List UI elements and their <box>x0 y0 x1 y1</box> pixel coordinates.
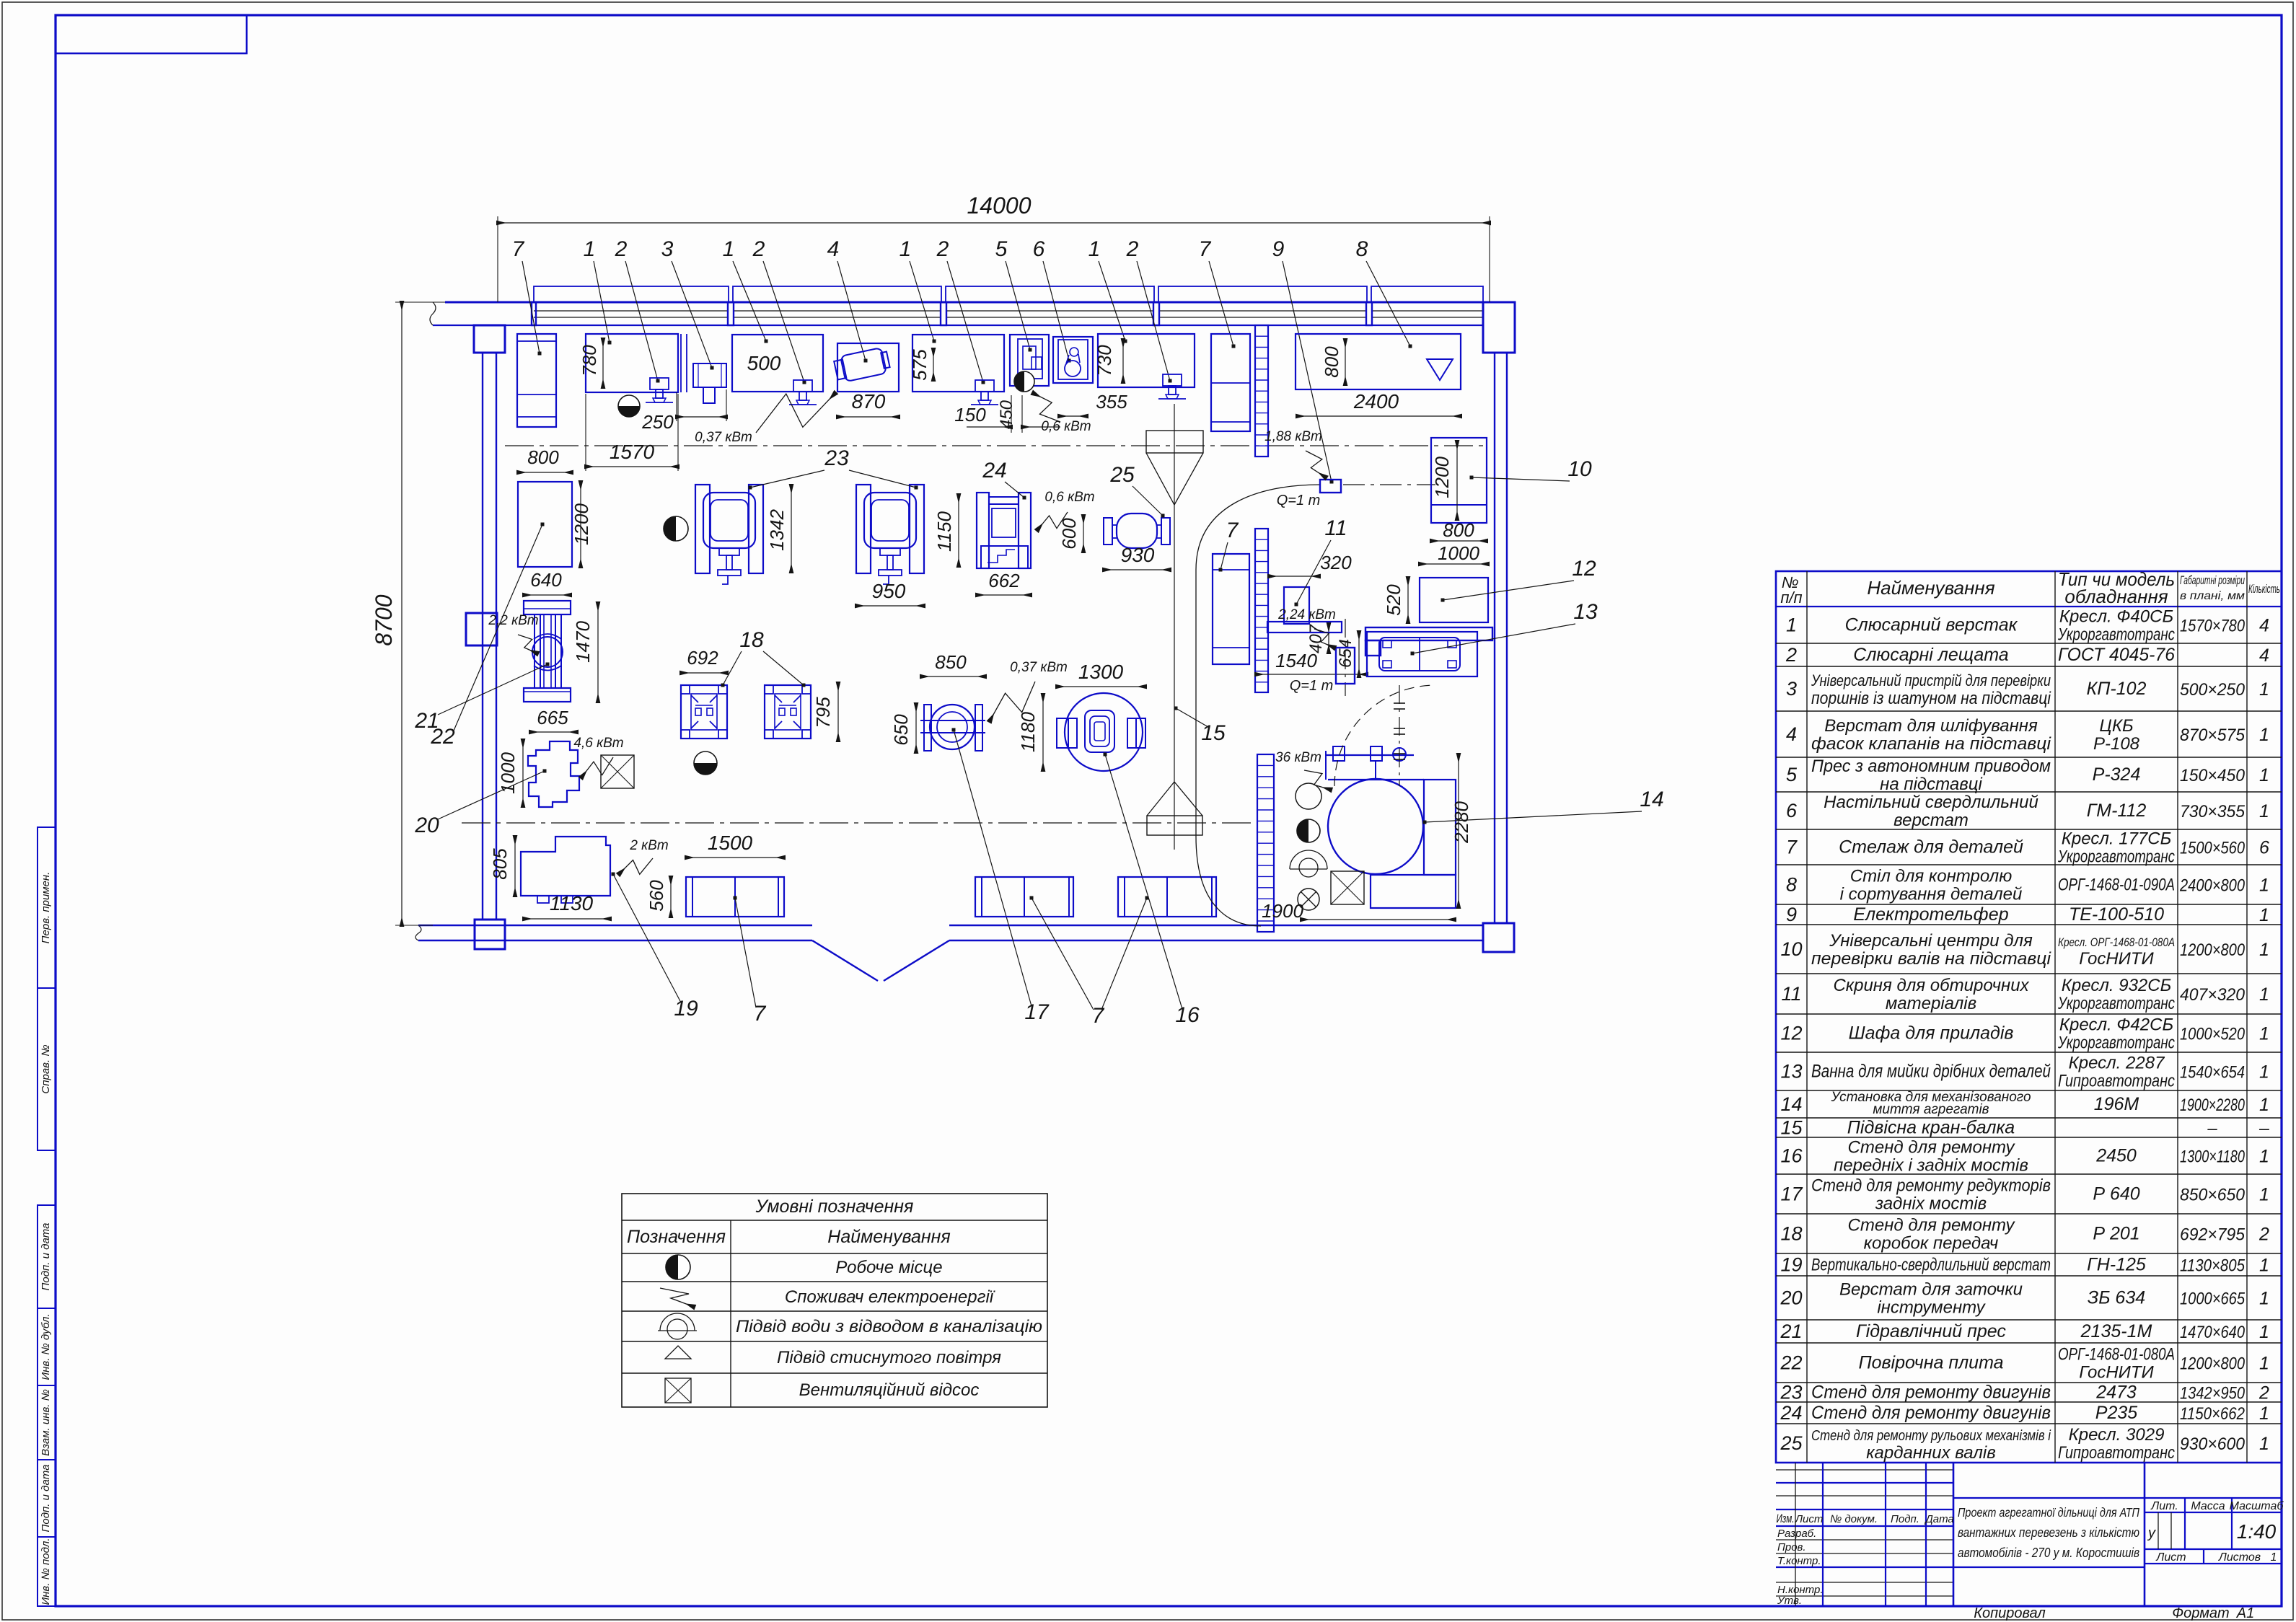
svg-text:№ докум.: № докум. <box>1830 1513 1878 1525</box>
svg-text:1470×640: 1470×640 <box>2180 1323 2246 1342</box>
svg-text:150×450: 150×450 <box>2180 766 2246 785</box>
svg-text:Р 201: Р 201 <box>2093 1224 2139 1244</box>
svg-text:930×600: 930×600 <box>2180 1434 2246 1454</box>
svg-text:ГосНИТИ: ГосНИТИ <box>2079 949 2154 969</box>
svg-text:Утв.: Утв. <box>1777 1595 1802 1607</box>
svg-text:1: 1 <box>2259 1095 2269 1115</box>
svg-text:Підвід води з відводом в канал: Підвід води з відводом в каналізацію <box>736 1317 1042 1336</box>
svg-text:17: 17 <box>1780 1184 1803 1205</box>
svg-text:Дата: Дата <box>1924 1513 1954 1525</box>
svg-text:930: 930 <box>1121 544 1155 566</box>
svg-text:Пров.: Пров. <box>1777 1541 1806 1553</box>
svg-text:196М: 196М <box>2094 1094 2139 1114</box>
svg-text:7: 7 <box>512 237 525 261</box>
svg-text:Стелаж для деталей: Стелаж для деталей <box>1839 837 2023 858</box>
svg-text:ОРГ-1468-01-080А: ОРГ-1468-01-080А <box>2058 1345 2175 1365</box>
svg-text:Инв. № дубл.: Инв. № дубл. <box>40 1313 52 1380</box>
svg-text:560: 560 <box>646 880 667 912</box>
svg-text:Листов: Листов <box>2218 1551 2261 1564</box>
svg-text:14000: 14000 <box>967 193 1032 219</box>
svg-text:25: 25 <box>1780 1432 1803 1454</box>
svg-text:Т.контр.: Т.контр. <box>1777 1555 1821 1567</box>
svg-text:800: 800 <box>1443 519 1474 541</box>
svg-text:Копировал: Копировал <box>1974 1605 2045 1621</box>
svg-text:Підвісна кран-балка: Підвісна кран-балка <box>1847 1118 2015 1138</box>
svg-text:2: 2 <box>752 237 765 261</box>
svg-text:1: 1 <box>2259 765 2269 785</box>
svg-text:7: 7 <box>1092 1004 1105 1028</box>
svg-text:Настільний свердлильний: Настільний свердлильний <box>1824 793 2038 812</box>
svg-text:Кресл. Ф40СБ: Кресл. Ф40СБ <box>2059 607 2173 627</box>
svg-text:коробок передач: коробок передач <box>1864 1234 1999 1253</box>
svg-text:1200: 1200 <box>1431 457 1453 498</box>
svg-text:4: 4 <box>2259 645 2269 666</box>
svg-text:1150×662: 1150×662 <box>2180 1404 2245 1424</box>
svg-text:А1: А1 <box>2236 1605 2254 1621</box>
svg-text:450: 450 <box>997 400 1016 429</box>
svg-text:Масштаб: Масштаб <box>2230 1500 2284 1512</box>
svg-text:0,37 кВт: 0,37 кВт <box>695 430 752 445</box>
svg-text:Стіл для контролю: Стіл для контролю <box>1850 867 2013 886</box>
svg-text:250: 250 <box>641 411 674 433</box>
svg-text:на підставці: на підставці <box>1880 775 1982 794</box>
svg-text:–: – <box>2207 1119 2217 1139</box>
svg-text:1570×780: 1570×780 <box>2180 617 2246 636</box>
svg-text:12: 12 <box>1780 1023 1802 1044</box>
svg-text:795: 795 <box>812 697 834 728</box>
svg-text:2 кВт: 2 кВт <box>629 838 668 853</box>
svg-text:22: 22 <box>1780 1352 1802 1374</box>
svg-text:1: 1 <box>2259 679 2269 700</box>
svg-text:КП-102: КП-102 <box>2087 679 2147 699</box>
svg-text:12: 12 <box>1572 557 1596 581</box>
svg-text:Гипроавтотранс: Гипроавтотранс <box>2058 1443 2175 1463</box>
svg-text:9: 9 <box>1786 904 1797 925</box>
svg-text:1: 1 <box>1786 614 1797 636</box>
svg-text:0,6 кВт: 0,6 кВт <box>1041 419 1091 434</box>
svg-text:21: 21 <box>1780 1321 1802 1342</box>
svg-text:10: 10 <box>1567 457 1592 481</box>
svg-text:Укроргавтотранс: Укроргавтотранс <box>2057 994 2175 1013</box>
svg-text:1200: 1200 <box>571 503 592 545</box>
svg-text:Укроргавтотранс: Укроргавтотранс <box>2057 1033 2175 1053</box>
svg-text:11: 11 <box>1324 516 1347 540</box>
svg-text:миття агрегатів: миття агрегатів <box>1873 1102 1989 1117</box>
svg-text:850×650: 850×650 <box>2180 1186 2246 1205</box>
svg-text:6: 6 <box>1033 237 1045 261</box>
svg-text:Укроргавтотранс: Укроргавтотранс <box>2057 625 2175 645</box>
svg-text:14: 14 <box>1780 1093 1802 1115</box>
svg-text:2: 2 <box>1785 644 1797 666</box>
svg-text:6: 6 <box>2259 838 2269 858</box>
svg-text:1000×665: 1000×665 <box>2180 1290 2246 1309</box>
svg-text:6: 6 <box>1786 800 1798 821</box>
svg-text:5: 5 <box>995 237 1008 261</box>
svg-text:25: 25 <box>1109 463 1135 487</box>
svg-text:1900: 1900 <box>1262 900 1303 922</box>
svg-text:36 кВт: 36 кВт <box>1275 750 1321 765</box>
svg-text:Масса: Масса <box>2191 1500 2225 1512</box>
svg-text:Укроргавтотранс: Укроргавтотранс <box>2057 847 2175 867</box>
svg-text:0,37 кВт: 0,37 кВт <box>1010 660 1068 675</box>
svg-text:2: 2 <box>936 237 949 261</box>
svg-text:–: – <box>2258 1119 2270 1139</box>
svg-text:Шафа для приладів: Шафа для приладів <box>1849 1023 2014 1044</box>
svg-text:2,2 кВт: 2,2 кВт <box>488 613 538 628</box>
svg-text:730: 730 <box>1094 345 1115 376</box>
svg-text:150: 150 <box>954 404 986 426</box>
svg-text:1: 1 <box>900 237 912 261</box>
svg-text:10: 10 <box>1780 938 1802 960</box>
svg-text:500×250: 500×250 <box>2180 680 2246 700</box>
svg-text:Взам. инв. №: Взам. инв. № <box>40 1389 52 1456</box>
svg-text:4: 4 <box>2259 616 2269 636</box>
svg-text:1: 1 <box>2259 725 2269 745</box>
svg-text:870×575: 870×575 <box>2180 726 2246 745</box>
svg-text:Подп. и дата: Подп. и дата <box>40 1223 52 1291</box>
svg-text:8: 8 <box>1356 237 1368 261</box>
svg-text:Гипроавтотранс: Гипроавтотранс <box>2058 1072 2175 1091</box>
svg-text:Кількість: Кількість <box>2248 582 2280 596</box>
svg-text:1: 1 <box>723 237 735 261</box>
svg-text:1: 1 <box>2259 801 2269 821</box>
svg-text:13: 13 <box>1780 1061 1802 1083</box>
svg-text:Верстат для шліфування: Верстат для шліфування <box>1824 716 2038 736</box>
svg-text:Робоче місце: Робоче місце <box>835 1258 942 1277</box>
svg-text:у: у <box>2147 1525 2156 1541</box>
svg-text:Стенд для ремонту: Стенд для ремонту <box>1848 1216 2016 1235</box>
svg-text:2135-1М: 2135-1М <box>2080 1321 2152 1341</box>
svg-text:9: 9 <box>1272 237 1285 261</box>
svg-text:0,6 кВт: 0,6 кВт <box>1044 490 1094 505</box>
svg-text:1342: 1342 <box>766 509 788 551</box>
svg-text:1: 1 <box>2259 940 2269 960</box>
svg-text:1: 1 <box>2259 1185 2269 1205</box>
svg-text:1: 1 <box>2259 1434 2269 1454</box>
svg-text:24: 24 <box>1780 1402 1802 1424</box>
svg-text:2,24 кВт: 2,24 кВт <box>1277 607 1336 622</box>
svg-text:16: 16 <box>1175 1003 1200 1027</box>
svg-text:1300: 1300 <box>1078 661 1124 683</box>
svg-text:1: 1 <box>2259 1289 2269 1309</box>
svg-text:4: 4 <box>1786 723 1797 745</box>
svg-text:Р-108: Р-108 <box>2093 734 2140 754</box>
svg-text:17: 17 <box>1024 1000 1050 1024</box>
svg-text:692: 692 <box>687 647 718 669</box>
svg-text:ГосНИТИ: ГосНИТИ <box>2079 1363 2154 1383</box>
svg-text:карданних валів: карданних валів <box>1866 1443 1996 1463</box>
svg-text:5: 5 <box>1786 764 1798 785</box>
svg-text:Стенд для ремонту редукторів: Стенд для ремонту редукторів <box>1811 1176 2051 1196</box>
svg-text:Р-324: Р-324 <box>2093 764 2141 785</box>
svg-text:15: 15 <box>1780 1117 1803 1139</box>
svg-text:Вентиляційний відсос: Вентиляційний відсос <box>799 1380 980 1400</box>
svg-text:18: 18 <box>739 628 764 652</box>
svg-text:Стенд для ремонту двигунів: Стенд для ремонту двигунів <box>1811 1403 2051 1423</box>
svg-text:Прес з автономним приводом: Прес з автономним приводом <box>1811 757 2051 776</box>
svg-text:1130×805: 1130×805 <box>2180 1256 2246 1276</box>
svg-text:1: 1 <box>2259 984 2269 1005</box>
svg-text:1300×1180: 1300×1180 <box>2180 1148 2245 1167</box>
svg-text:1: 1 <box>2259 1322 2269 1342</box>
svg-text:Універсальні центри для: Універсальні центри для <box>1829 931 2033 951</box>
svg-text:Кресл. Ф42СБ: Кресл. Ф42СБ <box>2059 1015 2173 1035</box>
svg-text:1: 1 <box>584 237 596 261</box>
svg-text:1: 1 <box>2259 1024 2269 1044</box>
svg-text:Гідравлічний прес: Гідравлічний прес <box>1856 1321 2006 1341</box>
svg-text:8700: 8700 <box>371 594 397 645</box>
svg-text:інструменту: інструменту <box>1877 1298 1986 1318</box>
svg-text:2400×800: 2400×800 <box>2179 876 2245 896</box>
svg-text:1150: 1150 <box>933 511 955 552</box>
svg-text:Слюсарний верстак: Слюсарний верстак <box>1845 615 2018 635</box>
svg-text:2: 2 <box>1126 237 1139 261</box>
svg-text:1570: 1570 <box>610 441 655 463</box>
svg-text:1900×2280: 1900×2280 <box>2180 1096 2245 1115</box>
svg-text:2473: 2473 <box>2095 1383 2137 1403</box>
svg-text:355: 355 <box>1096 391 1127 413</box>
svg-text:692×795: 692×795 <box>2180 1225 2246 1245</box>
svg-text:20: 20 <box>414 814 439 837</box>
svg-text:Кресл. ОРГ-1468-01-080А: Кресл. ОРГ-1468-01-080А <box>2058 935 2175 949</box>
svg-text:Ванна для мийки дрібних детале: Ванна для мийки дрібних деталей <box>1811 1062 2051 1082</box>
svg-text:Лист: Лист <box>1795 1513 1824 1525</box>
svg-text:Инв. № подл.: Инв. № подл. <box>40 1538 52 1605</box>
svg-text:2450: 2450 <box>2095 1146 2137 1166</box>
svg-text:4,6 кВт: 4,6 кВт <box>573 736 623 751</box>
svg-text:Формат: Формат <box>2172 1605 2229 1621</box>
svg-text:Р 640: Р 640 <box>2093 1184 2139 1204</box>
svg-text:730×355: 730×355 <box>2180 802 2246 821</box>
svg-text:14: 14 <box>1640 788 1663 811</box>
svg-text:Стенд для ремонту рульових мех: Стенд для ремонту рульових механізмів і <box>1811 1428 2051 1444</box>
svg-text:1000×520: 1000×520 <box>2180 1025 2246 1044</box>
svg-text:поршнів із шатуном на підставц: поршнів із шатуном на підставці <box>1811 689 2051 708</box>
svg-text:575: 575 <box>909 349 931 381</box>
svg-text:1342×950: 1342×950 <box>2180 1384 2246 1403</box>
svg-text:20: 20 <box>1780 1287 1802 1309</box>
svg-text:Q=1 m: Q=1 m <box>1277 493 1321 508</box>
svg-text:Габаритні розміри: Габаритні розміри <box>2180 573 2245 587</box>
svg-text:23: 23 <box>1780 1382 1802 1403</box>
svg-text:16: 16 <box>1780 1145 1803 1167</box>
svg-text:1: 1 <box>2259 1403 2269 1424</box>
svg-text:19: 19 <box>674 997 698 1021</box>
svg-text:1: 1 <box>2259 1062 2269 1083</box>
svg-text:Подп.: Подп. <box>1891 1513 1919 1525</box>
svg-text:3: 3 <box>661 237 674 261</box>
svg-text:500: 500 <box>747 352 781 374</box>
svg-text:Лист: Лист <box>2155 1551 2186 1564</box>
svg-text:Позначення: Позначення <box>627 1227 726 1247</box>
svg-text:2280: 2280 <box>1451 801 1472 844</box>
svg-text:Скриня для обтирочних: Скриня для обтирочних <box>1833 976 2029 995</box>
svg-text:Підвід стиснутого повітря: Підвід стиснутого повітря <box>777 1348 1001 1367</box>
svg-text:2: 2 <box>615 237 628 261</box>
svg-text:Лит.: Лит. <box>2150 1500 2178 1512</box>
svg-text:Q=1 m: Q=1 m <box>1290 678 1334 694</box>
svg-text:407: 407 <box>1306 623 1326 653</box>
svg-text:1200×800: 1200×800 <box>2180 1354 2246 1374</box>
svg-text:ГОСТ 4045-76: ГОСТ 4045-76 <box>2058 645 2175 665</box>
svg-text:7: 7 <box>1199 237 1212 261</box>
svg-text:1130: 1130 <box>550 892 594 914</box>
svg-text:320: 320 <box>1320 552 1352 573</box>
svg-text:ЗБ 634: ЗБ 634 <box>2088 1288 2145 1308</box>
svg-text:перевірки валів на підставці: перевірки валів на підставці <box>1811 949 2051 969</box>
svg-text:Кресл. 177СБ: Кресл. 177СБ <box>2062 829 2171 849</box>
svg-text:ГМ-112: ГМ-112 <box>2087 801 2147 821</box>
svg-text:Кресл. 2287: Кресл. 2287 <box>2069 1054 2165 1073</box>
svg-text:Найменування: Найменування <box>1867 577 1994 599</box>
svg-text:Вертикально-свердлильний верст: Вертикально-свердлильний верстат <box>1811 1256 2051 1275</box>
svg-text:і сортування деталей: і сортування деталей <box>1840 885 2023 904</box>
svg-text:Перв. примен.: Перв. примен. <box>40 872 52 944</box>
svg-text:Р235: Р235 <box>2095 1403 2137 1423</box>
svg-text:640: 640 <box>530 569 562 591</box>
svg-text:ОРГ-1468-01-090А: ОРГ-1468-01-090А <box>2058 876 2175 895</box>
svg-text:1500×560: 1500×560 <box>2180 839 2246 858</box>
svg-text:автомобілів - 270 у м. Корости: автомобілів - 270 у м. Коростишів <box>1958 1546 2139 1560</box>
svg-text:8: 8 <box>1786 874 1797 896</box>
svg-text:Споживач електроенергії: Споживач електроенергії <box>785 1287 995 1307</box>
svg-text:ЦКБ: ЦКБ <box>2099 716 2133 736</box>
svg-text:520: 520 <box>1383 584 1404 616</box>
svg-text:19: 19 <box>1780 1254 1802 1276</box>
svg-text:23: 23 <box>824 446 849 470</box>
svg-text:Проект агрегатної дільниці для: Проект агрегатної дільниці для АТП <box>1958 1505 2139 1520</box>
svg-text:805: 805 <box>489 848 511 880</box>
svg-text:1,88 кВт: 1,88 кВт <box>1264 429 1322 444</box>
svg-text:1000: 1000 <box>1438 542 1479 564</box>
svg-text:1: 1 <box>2259 1256 2269 1276</box>
svg-text:870: 870 <box>852 390 886 413</box>
svg-text:18: 18 <box>1780 1223 1802 1245</box>
svg-text:1:40: 1:40 <box>2237 1520 2277 1543</box>
svg-text:верстат: верстат <box>1893 811 1969 830</box>
svg-text:1: 1 <box>2259 905 2269 925</box>
svg-text:Стенд для ремонту двигунів: Стенд для ремонту двигунів <box>1811 1383 2051 1403</box>
svg-text:Універсальний пристрій для пер: Універсальний пристрій для перевірки <box>1811 671 2051 689</box>
svg-text:п/п: п/п <box>1780 589 1802 607</box>
svg-text:2: 2 <box>2258 1225 2269 1245</box>
svg-text:1: 1 <box>2259 1354 2269 1374</box>
svg-text:7: 7 <box>1786 837 1798 858</box>
svg-text:в плані, мм: в плані, мм <box>2180 590 2245 602</box>
svg-text:11: 11 <box>1781 983 1801 1005</box>
svg-text:матеріалів: матеріалів <box>1886 994 1976 1013</box>
svg-text:21: 21 <box>414 709 439 733</box>
svg-text:Разраб.: Разраб. <box>1777 1528 1816 1540</box>
svg-text:Повірочна плита: Повірочна плита <box>1858 1353 2003 1373</box>
svg-text:3: 3 <box>1786 678 1797 700</box>
svg-text:800: 800 <box>1321 346 1342 378</box>
svg-text:1: 1 <box>2259 876 2269 896</box>
svg-text:650: 650 <box>890 714 912 746</box>
svg-text:фасок клапанів на підставці: фасок клапанів на підставці <box>1811 734 2051 754</box>
svg-text:1540: 1540 <box>1275 650 1317 671</box>
svg-text:850: 850 <box>935 651 967 673</box>
svg-text:1470: 1470 <box>572 621 594 663</box>
svg-text:4: 4 <box>827 237 840 261</box>
svg-text:1: 1 <box>1088 237 1101 261</box>
svg-text:Електротельфер: Електротельфер <box>1853 904 2008 925</box>
svg-text:Кресл. 932СБ: Кресл. 932СБ <box>2062 976 2171 995</box>
svg-text:Стенд для ремонту: Стенд для ремонту <box>1848 1138 2016 1158</box>
svg-text:24: 24 <box>982 459 1006 482</box>
svg-text:Кресл. 3029: Кресл. 3029 <box>2069 1425 2165 1445</box>
svg-text:665: 665 <box>537 707 568 728</box>
svg-text:вантажних перевезень з кількіс: вантажних перевезень з кількістю <box>1958 1525 2139 1540</box>
svg-text:13: 13 <box>1573 600 1598 624</box>
svg-text:передніх і задніх мостів: передніх і задніх мостів <box>1834 1156 2028 1176</box>
svg-text:1500: 1500 <box>708 832 753 854</box>
svg-text:задніх мостів: задніх мостів <box>1875 1194 1987 1214</box>
svg-text:ГН-125: ГН-125 <box>2087 1255 2146 1275</box>
svg-text:407×320: 407×320 <box>2180 985 2246 1005</box>
svg-text:Слюсарні лещата: Слюсарні лещата <box>1853 645 2009 665</box>
svg-text:2: 2 <box>2258 1383 2269 1403</box>
svg-text:Найменування: Найменування <box>827 1227 950 1247</box>
svg-text:2400: 2400 <box>1353 390 1399 413</box>
svg-text:Умовні позначення: Умовні позначення <box>755 1196 914 1217</box>
svg-text:800: 800 <box>527 446 559 468</box>
svg-text:1540×654: 1540×654 <box>2180 1063 2245 1083</box>
svg-text:7: 7 <box>1226 519 1239 542</box>
svg-text:1180: 1180 <box>1017 712 1039 752</box>
svg-text:662: 662 <box>988 570 1020 591</box>
svg-text:Верстат для заточки: Верстат для заточки <box>1839 1280 2023 1300</box>
svg-text:780: 780 <box>579 345 600 376</box>
svg-text:1: 1 <box>2259 1147 2269 1167</box>
svg-text:600: 600 <box>1058 518 1080 550</box>
svg-text:обладнання: обладнання <box>2064 586 2168 607</box>
svg-text:950: 950 <box>872 580 906 602</box>
svg-text:1200×800: 1200×800 <box>2180 940 2246 960</box>
svg-text:Справ. №: Справ. № <box>40 1044 52 1093</box>
svg-text:ТЕ-100-510: ТЕ-100-510 <box>2069 904 2164 925</box>
svg-text:1: 1 <box>2271 1551 2277 1564</box>
svg-text:Подп. и дата: Подп. и дата <box>40 1465 52 1533</box>
svg-text:Изм.: Изм. <box>1777 1512 1795 1525</box>
